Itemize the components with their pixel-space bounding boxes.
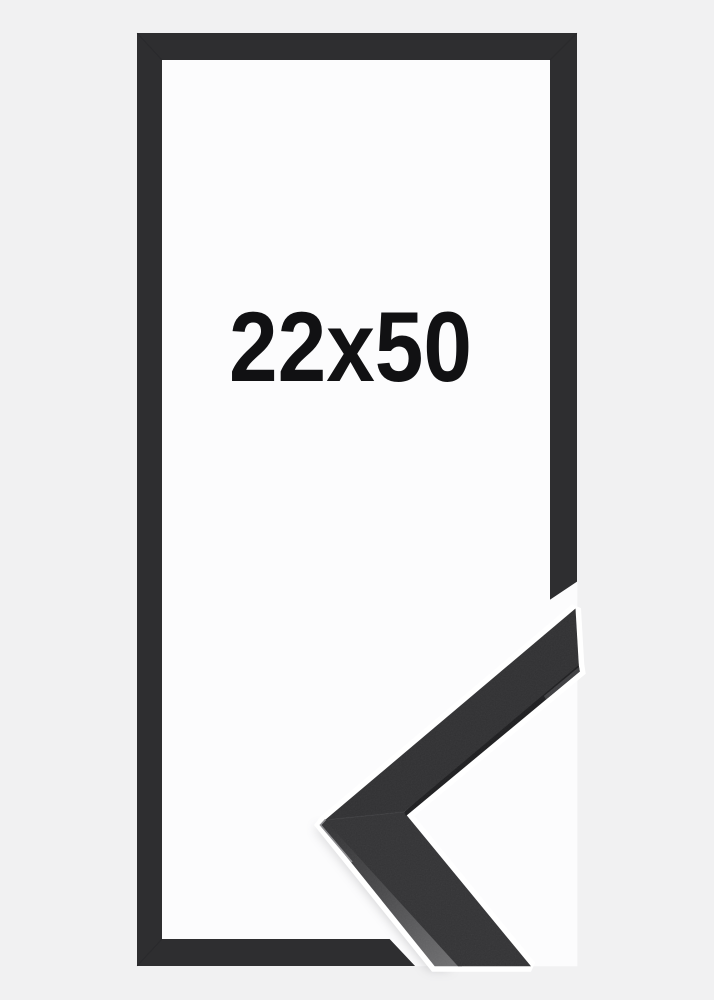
svg-text:22x50: 22x50 <box>229 291 472 402</box>
